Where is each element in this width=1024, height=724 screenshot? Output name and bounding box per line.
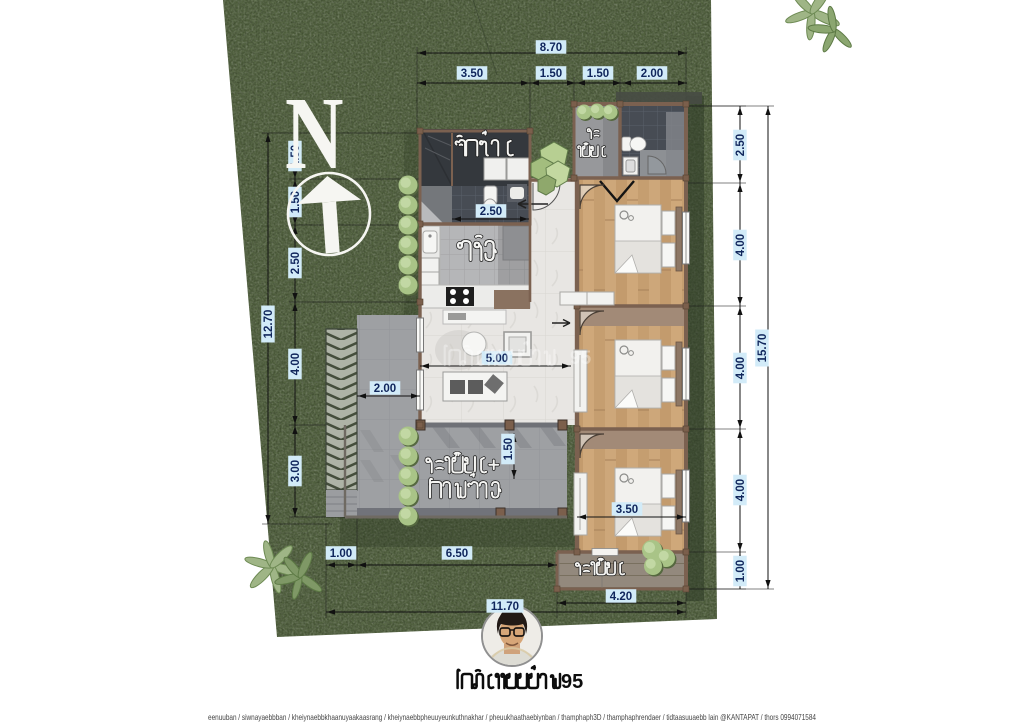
svg-text:1.00: 1.00 — [735, 560, 747, 582]
svg-text:2.50: 2.50 — [290, 252, 302, 274]
svg-text:2.50: 2.50 — [735, 134, 747, 156]
svg-text:4.00: 4.00 — [735, 357, 747, 379]
svg-text:2.00: 2.00 — [641, 68, 663, 80]
svg-text:8.70: 8.70 — [540, 42, 562, 54]
svg-text:1.50: 1.50 — [503, 438, 515, 460]
svg-text:3.00: 3.00 — [290, 460, 302, 482]
svg-text:4.20: 4.20 — [610, 591, 632, 603]
svg-text:1.50: 1.50 — [587, 68, 609, 80]
svg-text:2.50: 2.50 — [480, 206, 502, 218]
svg-text:11.70: 11.70 — [491, 601, 519, 613]
svg-text:1.00: 1.00 — [330, 548, 352, 560]
svg-text:eenuuban / siwnayaebbban / khe: eenuuban / siwnayaebbban / kheiynaebbkha… — [208, 712, 816, 722]
svg-text:12.70: 12.70 — [263, 310, 275, 339]
svg-text:95: 95 — [561, 671, 583, 693]
svg-text:15.70: 15.70 — [757, 334, 769, 363]
svg-text:6.50: 6.50 — [446, 548, 468, 560]
svg-text:95: 95 — [570, 348, 592, 369]
svg-text:1.50: 1.50 — [540, 68, 562, 80]
svg-text:4.00: 4.00 — [290, 353, 302, 375]
svg-text:4.00: 4.00 — [735, 234, 747, 256]
svg-text:2.00: 2.00 — [374, 383, 396, 395]
svg-text:3.50: 3.50 — [616, 504, 638, 516]
svg-text:4.00: 4.00 — [735, 479, 747, 501]
svg-text:3.50: 3.50 — [461, 68, 483, 80]
